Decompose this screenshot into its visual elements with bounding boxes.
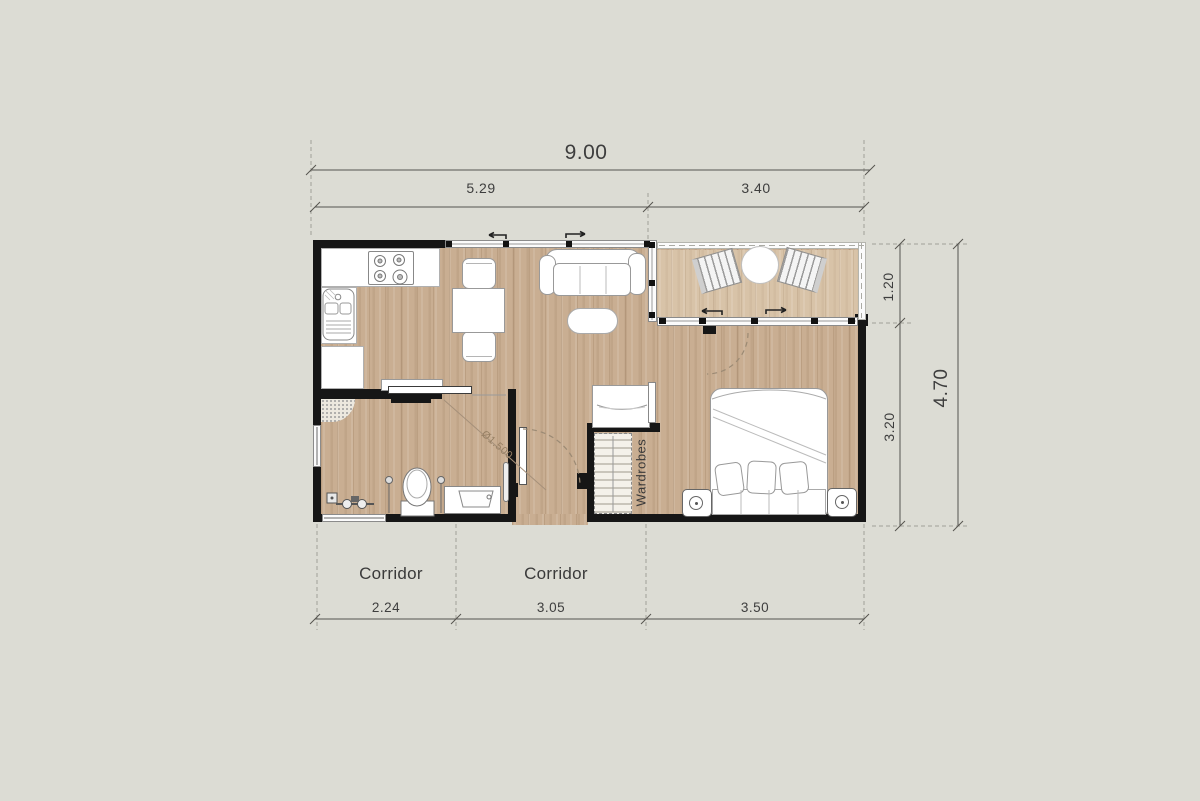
dim-terrace-depth: 1.20 (880, 262, 896, 312)
window-wall-bedroom-terrace (657, 317, 858, 326)
wardrobes (594, 433, 632, 514)
bedside-lamp-left (689, 496, 703, 510)
dim-total-width: 9.00 (546, 141, 626, 165)
dim-width-terrace: 3.40 (721, 180, 791, 196)
kitchen-cabinet (321, 346, 364, 389)
wall-left (313, 240, 321, 522)
bathroom-window-left (313, 425, 321, 467)
towel-rail (503, 462, 509, 502)
sofa-seat (553, 263, 631, 296)
bathroom-sliding-door (388, 386, 472, 394)
entry-door-jamb-right (577, 473, 588, 489)
pillow-3 (778, 461, 809, 496)
entry-threshold-floor (512, 514, 588, 525)
bedside-lamp-right (835, 495, 849, 509)
dim-corridor-width: 3.05 (516, 600, 586, 615)
dim-total-depth: 4.70 (931, 358, 953, 418)
entry-door-leaf (519, 427, 527, 485)
label-wardrobes: Wardrobes (634, 433, 649, 513)
terrace-table (741, 246, 779, 284)
nook-door-panel (648, 382, 656, 423)
dim-bath-width: 2.24 (351, 600, 421, 615)
dining-table (452, 288, 505, 333)
label-corridor-left: Corridor (336, 564, 446, 584)
dim-width-living: 5.29 (446, 180, 516, 196)
window-wall-top (445, 240, 652, 248)
dim-bedroom-depth: 3.20 (881, 402, 897, 452)
pillow-2 (746, 460, 777, 494)
bedroom-door-jamb (703, 326, 716, 334)
wall-bottom-right (588, 514, 866, 522)
dining-chair-top (462, 258, 496, 289)
stove (368, 251, 414, 285)
bathroom-window-bottom (322, 514, 386, 522)
floor-plan-canvas: 9.00 5.29 3.40 1.20 3.20 4.70 2.24 3.05 … (0, 0, 1200, 801)
label-corridor-mid: Corridor (501, 564, 611, 584)
dressing-desk (592, 385, 650, 428)
kitchen-counter-sink (321, 287, 357, 344)
pillow-1 (714, 461, 745, 496)
dining-chair-bottom (462, 331, 496, 362)
wall-mounted-tv (391, 397, 431, 403)
bathroom-vanity (444, 486, 501, 514)
dim-bedroom-width: 3.50 (720, 600, 790, 615)
coffee-table (567, 308, 618, 334)
wall-bedroom-west (587, 423, 594, 522)
window-wall-living-terrace (648, 240, 657, 322)
terrace-edge-right (858, 242, 866, 320)
wall-bedroom-right (858, 318, 866, 522)
wall-top (313, 240, 447, 248)
